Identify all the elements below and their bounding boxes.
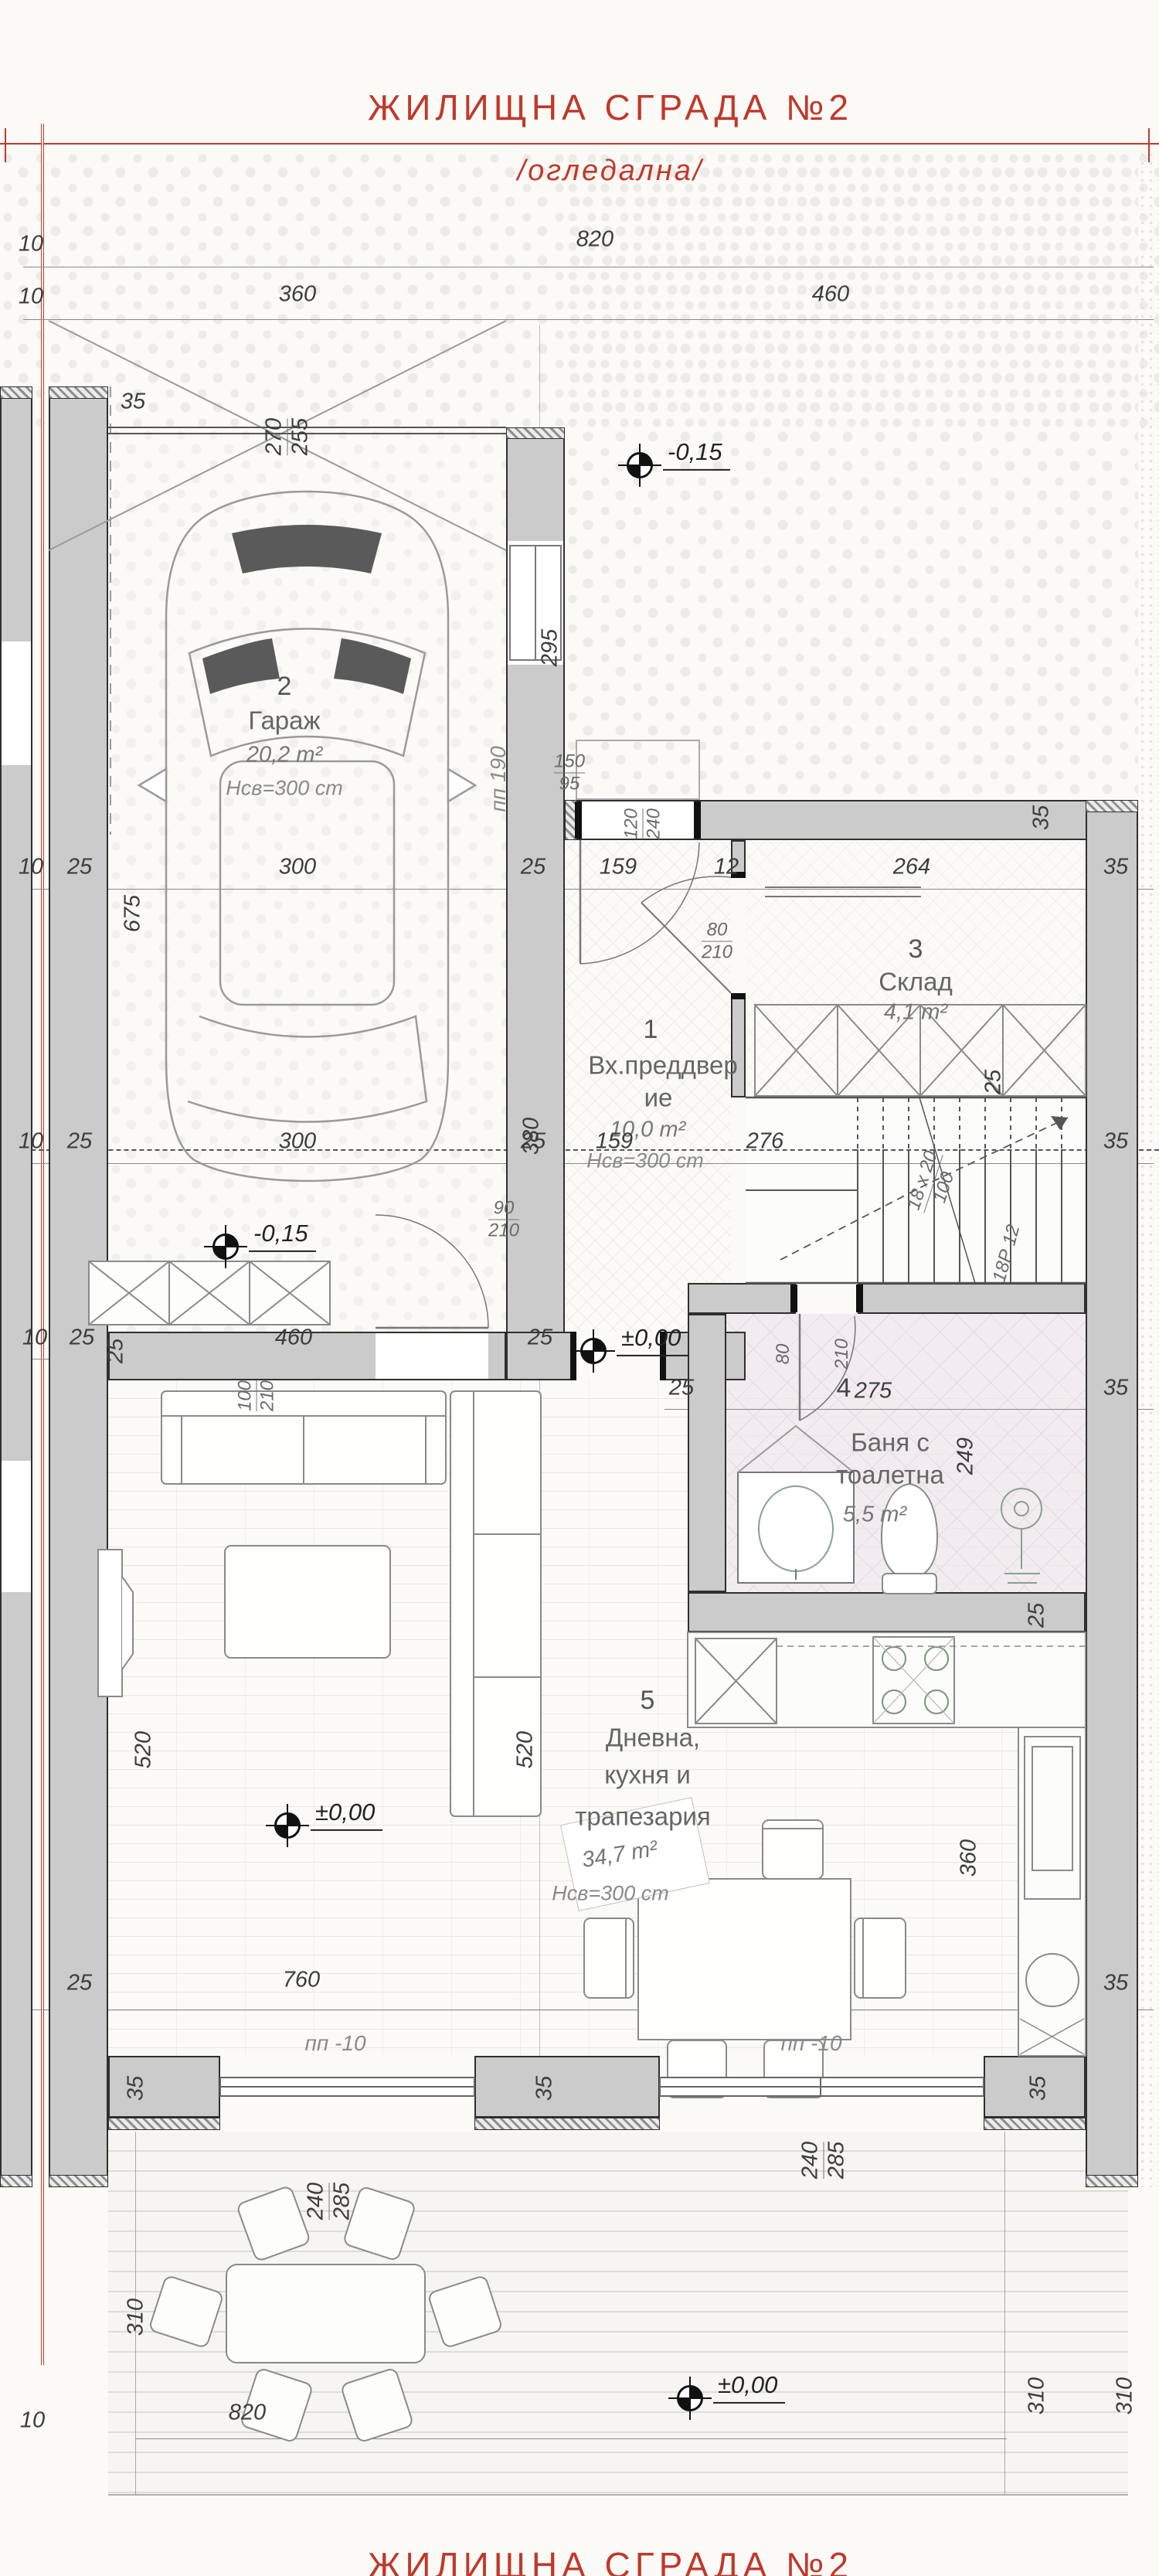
dim-label: 25	[70, 1327, 94, 1349]
dim-label: 240285	[800, 2142, 848, 2179]
elevation-marker	[580, 1338, 607, 1364]
dim-label: 35	[1028, 2076, 1050, 2101]
dim-label: 820	[229, 2402, 266, 2425]
elevation-marker	[677, 2385, 703, 2411]
dim-label: пп -10	[304, 2033, 365, 2054]
dim-label: 80210	[702, 921, 732, 962]
dim-label: 159	[600, 856, 637, 879]
dim-label: 264	[893, 856, 930, 879]
elevation-marker	[627, 452, 653, 478]
dim-label: 25	[105, 1339, 127, 1363]
dim-label: 35	[1031, 805, 1053, 830]
dim-label: 210	[833, 1339, 851, 1370]
dim-label: 35	[121, 391, 145, 413]
dim-label: 80	[774, 1344, 793, 1365]
dim-label: 295	[539, 629, 562, 666]
dim-label: 18Р 12	[991, 1223, 1024, 1285]
dim-label: 159	[596, 1131, 633, 1153]
dim-label: 270255	[263, 418, 312, 455]
dim-label: 240285	[305, 2183, 354, 2220]
floor-plan-canvas: ЖИЛИЩНА СГРАДА №2 /огледална/ ЖИЛИЩНА СГ…	[0, 0, 1159, 2576]
dim-label: 360	[279, 284, 316, 306]
dim-label: 300	[279, 1131, 316, 1153]
labels-layer: 10820103604603527025529515095пп 19012024…	[0, 0, 1159, 2576]
dim-label: 10	[20, 2410, 45, 2432]
elevation-value: ±0,00	[713, 2371, 785, 2404]
dim-label: 460	[812, 284, 849, 306]
dim-label: 460	[275, 1327, 312, 1349]
dim-label: 12	[714, 856, 739, 879]
elevation-value: -0,15	[249, 1220, 316, 1252]
dim-label: 276	[746, 1131, 783, 1153]
dim-label: 35	[125, 2076, 148, 2101]
dim-label: 18 x 20100	[905, 1148, 963, 1219]
dim-label: 35	[1103, 1377, 1128, 1400]
elevation-marker	[212, 1234, 239, 1260]
elevation-value: ±0,00	[311, 1798, 382, 1831]
dim-label: 10	[19, 856, 43, 879]
dim-label: 520	[133, 1731, 155, 1768]
dim-label: 25	[521, 856, 546, 879]
dim-label: 760	[283, 1969, 320, 1992]
dim-label: 310	[125, 2299, 148, 2336]
dim-label: 35	[1103, 1972, 1128, 1995]
dim-label: 10	[22, 1327, 47, 1349]
dim-label: 35	[1103, 856, 1128, 879]
dim-label: 10	[19, 233, 43, 256]
dim-label: 25	[983, 1070, 1005, 1094]
dim-label: 675	[122, 895, 144, 932]
dim-label: 15095	[554, 753, 585, 794]
elevation-value: -0,15	[663, 438, 730, 471]
dim-label: пп -10	[780, 2033, 841, 2054]
dim-label: 249	[955, 1438, 977, 1475]
dim-label: 25	[521, 1131, 546, 1153]
dim-label: 25	[1026, 1603, 1049, 1628]
dim-label: 10	[19, 1131, 43, 1153]
dim-label: пп 190	[488, 746, 509, 812]
elevation-marker	[274, 1812, 301, 1839]
dim-label: 275	[855, 1380, 892, 1403]
dim-label: 35	[534, 2076, 556, 2101]
dim-label: 520	[515, 1731, 537, 1768]
dim-label: 100210	[236, 1380, 277, 1411]
elevation-value: ±0,00	[617, 1324, 688, 1356]
dim-label: 300	[279, 856, 316, 879]
dim-label: 25	[67, 1972, 92, 1995]
dim-label: 10	[19, 286, 43, 308]
dim-label: 310	[1026, 2377, 1049, 2414]
dim-label: 310	[1114, 2377, 1137, 2414]
dim-label: 90210	[488, 1200, 519, 1240]
dim-label: 25	[67, 1131, 92, 1153]
dim-label: 25	[669, 1377, 694, 1400]
dim-label: 35	[1103, 1131, 1128, 1153]
dim-label: 25	[528, 1327, 552, 1349]
dim-label: 25	[67, 856, 92, 879]
dim-label: 120240	[623, 808, 664, 839]
dim-label: 820	[576, 229, 613, 251]
dim-label: 360	[958, 1839, 981, 1877]
